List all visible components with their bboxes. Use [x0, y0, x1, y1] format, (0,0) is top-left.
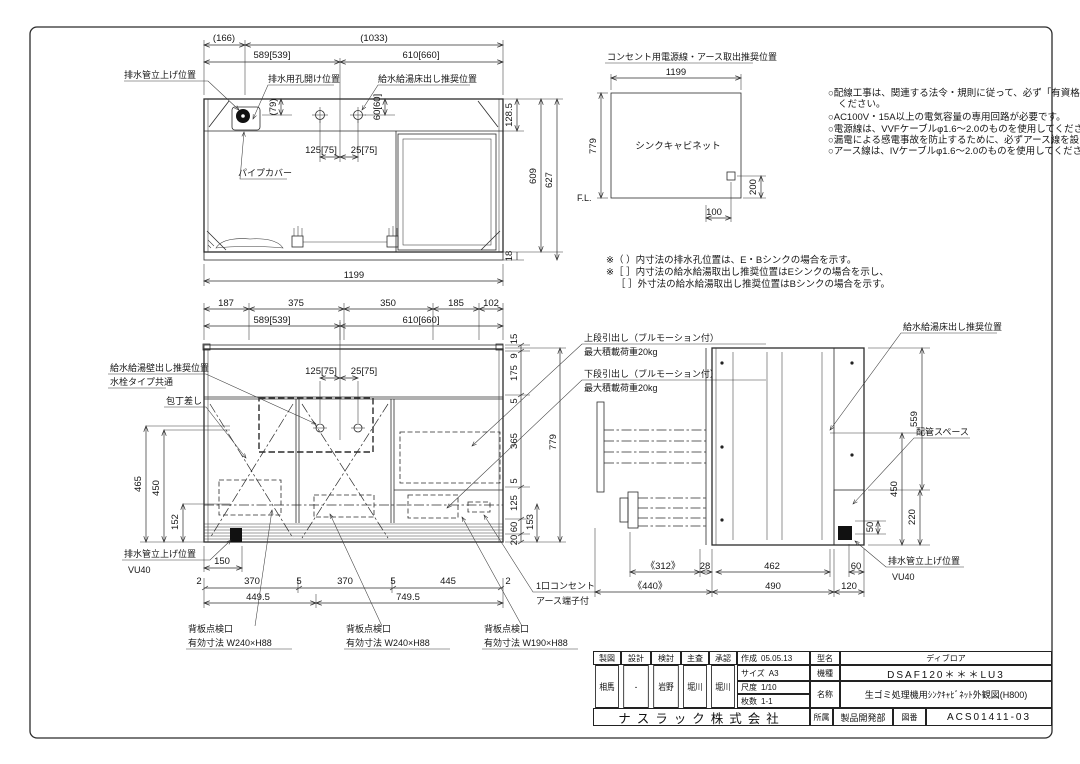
machine-label: 機種 — [810, 665, 840, 681]
drawing-canvas: (166) (1033) 589[539] 610[660] (79) 60[6… — [0, 0, 1080, 764]
name-label: 名称 — [810, 681, 840, 708]
side-view: 《312》 28 462 60 《440》 490 120 559 450 22… — [595, 321, 1002, 597]
dwg-label: 図番 — [893, 708, 926, 726]
dim: 610[660] — [403, 50, 440, 61]
dim: 153 — [525, 514, 536, 530]
dim: 465 — [133, 476, 144, 492]
outlet-view: コンセント用電源線・アース取出推奨位置 1199 779 シンクキャビネット F… — [577, 51, 1080, 222]
size-label: サイズ — [741, 668, 765, 679]
front-label-upper-load: 最大積載荷重20kg — [584, 346, 658, 357]
scale-label: 尺度 — [741, 682, 757, 693]
model-value: ディブロア — [840, 651, 1052, 665]
scale-value: 1/10 — [761, 683, 777, 692]
front-label-access3: 背板点検口 — [484, 623, 529, 634]
dim: 60[60] — [372, 94, 383, 120]
dim: 370 — [244, 576, 260, 587]
dim: 9 — [509, 353, 520, 358]
dim: 5 — [296, 576, 301, 587]
dim: 365 — [509, 433, 520, 449]
dim: 50 — [865, 522, 876, 533]
front-label-outlet1: 1口コンセント — [536, 581, 595, 591]
dim: 779 — [588, 138, 599, 154]
sheets-value: 1-1 — [761, 697, 773, 706]
signature: 堀川 — [711, 665, 735, 708]
front-label-lower-load: 最大積載荷重20kg — [584, 382, 658, 393]
front-view: 187 375 350 185 102 589[539] 610[660] 12… — [108, 298, 766, 649]
dim: 25[75] — [351, 366, 377, 377]
electrical-note: ○漏電による感電事故を防止するために、必ずアース線を設けてください。 — [828, 134, 1080, 146]
front-label-supply-wall: 給水給湯壁出し推奨位置 — [110, 362, 209, 373]
outlet-cabinet-label: シンクキャビネット — [635, 141, 721, 152]
front-label-lower-drawer: 下段引出し（ブルモーション付） — [584, 368, 719, 379]
title-block: 製図 設計 検討 主査 承認 相馬 - 岩野 堀川 堀川 作成 05.05.13… — [593, 651, 1052, 726]
side-label-drain-riser: 排水管立上げ位置 — [888, 555, 960, 566]
front-label-access2: 背板点検口 — [346, 623, 391, 634]
dim: (166) — [213, 33, 235, 44]
bracket-note: ※［ ］内寸法の給水給湯取出し推奨位置はEシンクの場合を示し、 — [606, 266, 889, 278]
electrical-note: ○配線工事は、関連する法令・規則に従って、必ず「有資格者」が行なって — [828, 87, 1080, 99]
created-label: 作成 — [741, 653, 757, 664]
sign-header: 製図 — [593, 651, 621, 665]
created-cell: 作成 05.05.13 — [737, 651, 810, 665]
plan-label-drain-hole: 排水用孔開け位置 — [268, 73, 340, 84]
front-label-access1: 背板点検口 — [188, 623, 233, 634]
dim: 5 — [509, 478, 520, 483]
dim: 175 — [509, 365, 520, 381]
bracket-notes: ※（ ）内寸法の排水孔位置は、E・Bシンクの場合を示す。 ※［ ］内寸法の給水給… — [606, 254, 890, 290]
dim: 120 — [841, 581, 857, 592]
dim: 100 — [706, 207, 722, 218]
dim: 60 — [509, 522, 520, 533]
plan-label-pipe-cover: パイプカバー — [238, 168, 292, 178]
dim: (1033) — [360, 33, 387, 44]
dim: 102 — [483, 298, 499, 309]
front-label-knife: 包丁差し — [166, 395, 202, 406]
dim: 25[75] — [351, 145, 377, 156]
dim: 20 — [509, 535, 520, 546]
dim: 《312》 — [646, 561, 681, 572]
drawing-sheet: (166) (1033) 589[539] 610[660] (79) 60[6… — [0, 0, 1080, 764]
signature: 堀川 — [683, 665, 707, 708]
front-label-access1-size: 有効寸法 W240×H88 — [188, 637, 272, 648]
front-label-upper-drawer: 上段引出し（ブルモーション付） — [584, 332, 719, 343]
signature: 相馬 — [595, 665, 619, 708]
side-label-supply-floor: 給水給湯床出し推奨位置 — [903, 321, 1002, 332]
dim: 589[539] — [254, 315, 291, 326]
plan-label-supply-floor: 給水給湯床出し推奨位置 — [378, 73, 477, 84]
dim: 749.5 — [396, 592, 420, 603]
dim: 28 — [700, 561, 711, 572]
dim: 60 — [851, 561, 862, 572]
dim: 490 — [765, 581, 781, 592]
size-value: A3 — [769, 669, 779, 678]
dim: 609 — [528, 168, 539, 184]
dept-label: 所属 — [810, 708, 833, 726]
name-value: 生ゴミ処理機用ｼﾝｸｷｬﾋﾞﾈｯﾄ外観図(H800) — [840, 681, 1052, 708]
side-label-vu40: VU40 — [892, 572, 915, 582]
dim: 779 — [548, 434, 559, 450]
electrical-note: ○AC100V・15A以上の電気容量の専用回路が必要です。 — [828, 111, 1066, 123]
dim: 445 — [440, 576, 456, 587]
front-label-drain-riser: 排水管立上げ位置 — [124, 548, 196, 559]
dim: 450 — [889, 481, 900, 497]
dim: 220 — [907, 509, 918, 525]
dim: (79) — [268, 99, 279, 116]
front-label-outlet2: アース端子付 — [536, 595, 589, 606]
dim: 559 — [909, 411, 920, 427]
dim: 1199 — [666, 67, 686, 78]
front-label-access2-size: 有効寸法 W240×H88 — [346, 637, 430, 648]
dim: 450 — [151, 480, 162, 496]
dim: 375 — [288, 298, 304, 309]
dim: 200 — [748, 179, 759, 195]
machine-value: DSAF120＊＊＊LU3 — [840, 665, 1052, 681]
dim: 589[539] — [254, 50, 291, 61]
dim: 610[660] — [403, 315, 440, 326]
sheets-cell: 枚数 1-1 — [737, 694, 810, 708]
sheets-label: 枚数 — [741, 696, 757, 707]
fl-label: F.L. — [577, 193, 592, 203]
side-label-pipe-space: 配管スペース — [916, 426, 969, 437]
outlet-title: コンセント用電源線・アース取出推奨位置 — [607, 51, 777, 62]
dwg-number: ACS01411-03 — [926, 708, 1052, 726]
electrical-note: ○電源線は、VVFケーブルφ1.6～2.0のものを使用してください。 — [828, 123, 1080, 135]
dim: 187 — [218, 298, 234, 309]
dim: 2 — [505, 576, 510, 587]
dim: 128.5 — [504, 103, 515, 127]
dim: 627 — [544, 172, 555, 188]
sign-header: 設計 — [621, 651, 651, 665]
bracket-note: ［ ］外寸法の給水給湯取出し推奨位置はBシンクの場合を示す。 — [616, 278, 890, 290]
electrical-note: ください。 — [838, 99, 886, 110]
scale-cell: 尺度 1/10 — [737, 681, 810, 694]
dim: 5 — [390, 576, 395, 587]
dim: 150 — [214, 556, 230, 567]
bracket-note: ※（ ）内寸法の排水孔位置は、E・Bシンクの場合を示す。 — [606, 254, 856, 266]
dim: 18 — [504, 251, 515, 262]
dim: 1199 — [344, 270, 364, 281]
sign-header: 承認 — [709, 651, 737, 665]
size-cell: サイズ A3 — [737, 665, 810, 681]
front-label-access3-size: 有効寸法 W190×H88 — [484, 637, 568, 648]
dim: 449.5 — [246, 592, 270, 603]
plan-view: (166) (1033) 589[539] 610[660] (79) 60[6… — [124, 33, 563, 286]
dim: 125[75] — [305, 145, 337, 156]
dim: 15 — [509, 334, 520, 345]
sign-header: 主査 — [681, 651, 709, 665]
plan-label-drain-riser: 排水管立上げ位置 — [124, 69, 196, 80]
front-label-faucet-common: 水栓タイプ共通 — [110, 376, 173, 387]
dept-value: 製品開発部 — [833, 708, 893, 726]
dim: 370 — [337, 576, 353, 587]
dim: 185 — [448, 298, 464, 309]
dim: 125[75] — [305, 366, 337, 377]
signature: - — [623, 665, 649, 708]
created-date: 05.05.13 — [761, 654, 792, 663]
electrical-note: ○アース線は、IVケーブルφ1.6～2.0のものを使用してください。 — [828, 145, 1080, 157]
dim: 152 — [170, 514, 181, 530]
dim: 462 — [764, 561, 780, 572]
dim: 350 — [380, 298, 396, 309]
signature: 岩野 — [653, 665, 679, 708]
sign-header: 検討 — [651, 651, 681, 665]
dim: 2 — [196, 576, 201, 587]
model-label: 型名 — [810, 651, 840, 665]
dim: 《440》 — [633, 581, 668, 592]
company-name: ナスラック株式会社 — [593, 708, 810, 726]
dim: 125 — [509, 495, 520, 511]
front-label-vu40: VU40 — [128, 565, 151, 575]
